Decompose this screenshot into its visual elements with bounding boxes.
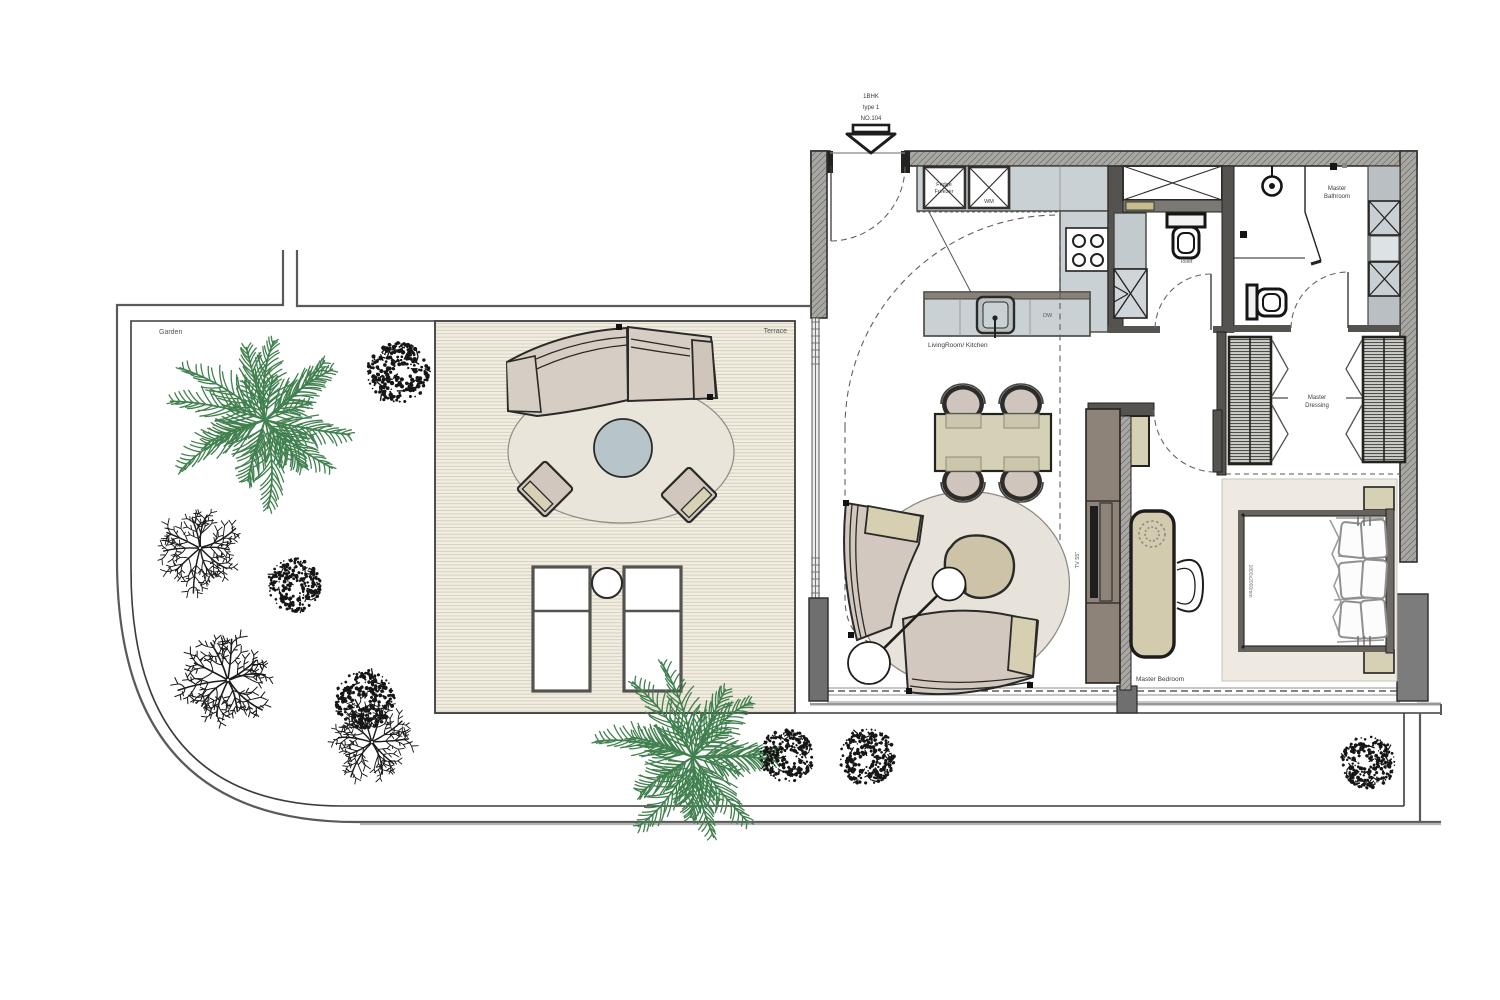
svg-text:Toilet: Toilet: [1180, 259, 1193, 265]
svg-text:Garden: Garden: [159, 329, 182, 336]
svg-text:NO.104: NO.104: [861, 116, 882, 122]
svg-text:Master: Master: [1328, 186, 1346, 192]
svg-text:Master: Master: [1308, 395, 1326, 401]
svg-text:Terrace: Terrace: [764, 328, 787, 335]
svg-text:1BHK: 1BHK: [863, 94, 879, 100]
svg-text:Freezer: Freezer: [935, 189, 954, 195]
svg-text:1800x2000mm: 1800x2000mm: [1247, 564, 1253, 597]
svg-text:Dressing: Dressing: [1305, 403, 1329, 409]
svg-text:LivingRoom/ Kitchen: LivingRoom/ Kitchen: [928, 342, 988, 349]
svg-text:Fridge: Fridge: [936, 182, 952, 188]
svg-text:DW: DW: [1043, 313, 1053, 319]
svg-text:TV 55": TV 55": [1075, 552, 1081, 569]
svg-text:Bathroom: Bathroom: [1324, 194, 1350, 200]
svg-text:Master Bedroom: Master Bedroom: [1136, 676, 1184, 683]
svg-text:WM: WM: [984, 199, 994, 205]
svg-text:type 1: type 1: [863, 105, 880, 111]
